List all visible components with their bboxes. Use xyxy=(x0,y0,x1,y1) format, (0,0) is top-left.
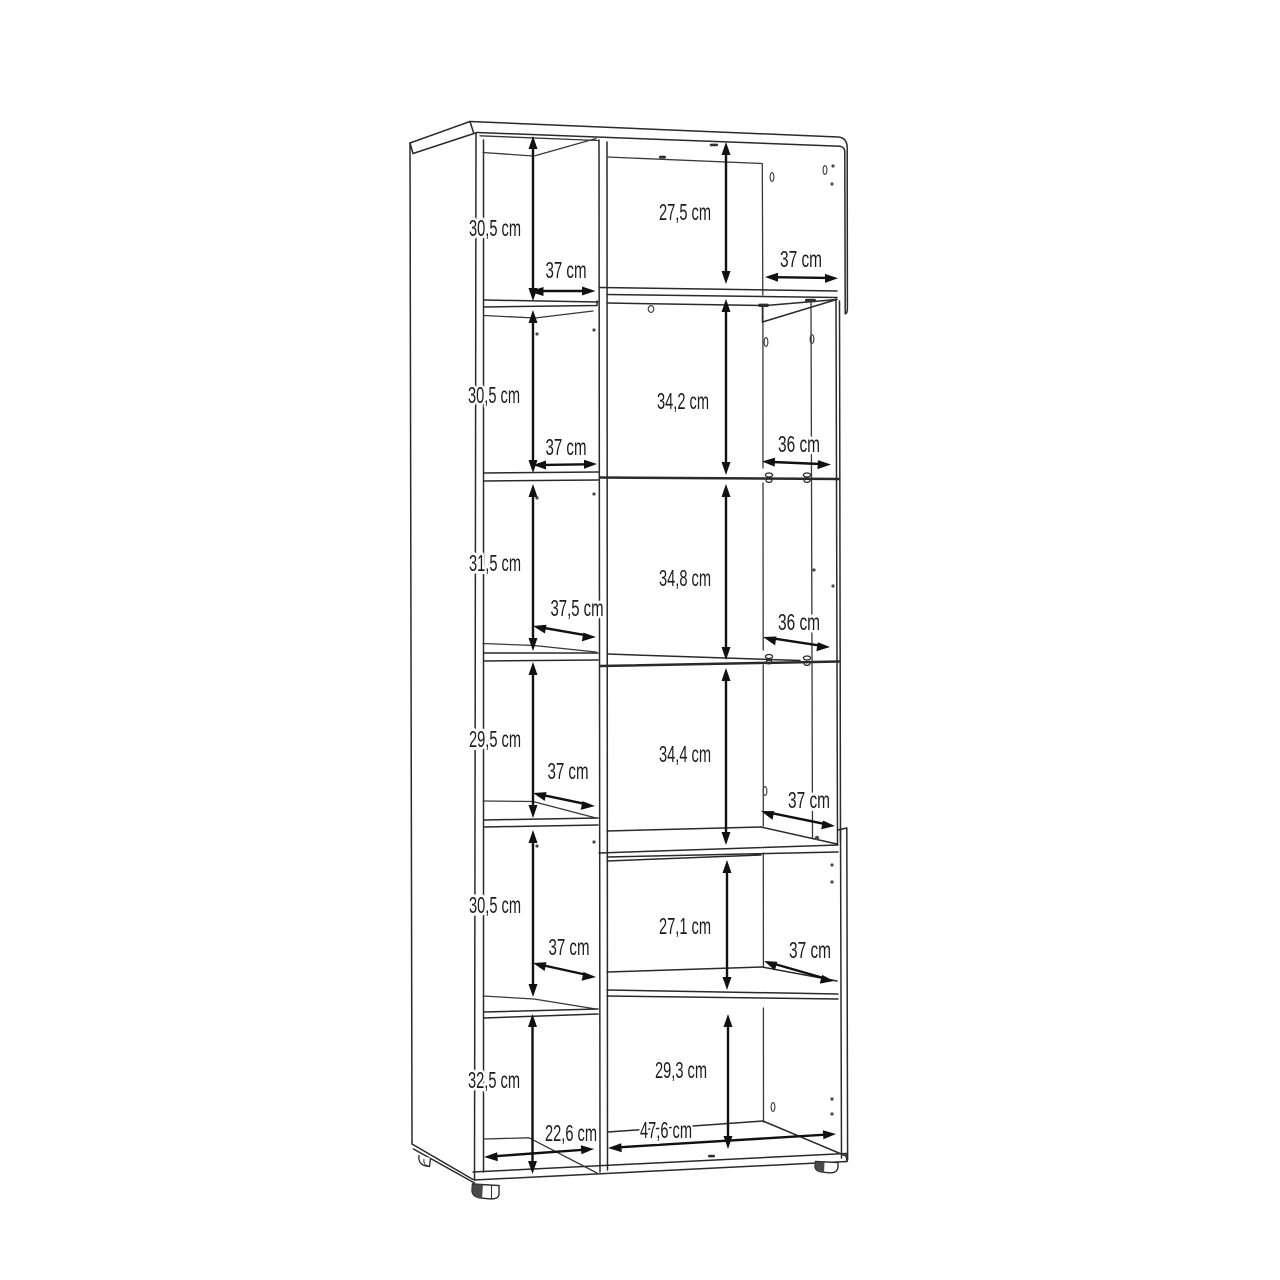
svg-text:30,5 cm: 30,5 cm xyxy=(469,215,521,241)
svg-text:32,5 cm: 32,5 cm xyxy=(468,1067,520,1093)
svg-text:34,8 cm: 34,8 cm xyxy=(659,565,711,591)
svg-text:37 cm: 37 cm xyxy=(546,257,587,283)
svg-text:36 cm: 36 cm xyxy=(778,431,820,457)
svg-text:47,6 cm: 47,6 cm xyxy=(640,1117,692,1143)
svg-text:27,1 cm: 27,1 cm xyxy=(659,913,711,939)
svg-text:37 cm: 37 cm xyxy=(780,246,822,272)
svg-text:30,5 cm: 30,5 cm xyxy=(468,382,520,408)
svg-text:37 cm: 37 cm xyxy=(546,434,587,460)
svg-text:37 cm: 37 cm xyxy=(549,934,590,960)
svg-text:31,5 cm: 31,5 cm xyxy=(469,550,521,576)
svg-text:36 cm: 36 cm xyxy=(778,609,820,635)
svg-text:37,5 cm: 37,5 cm xyxy=(551,595,604,621)
svg-text:30,5 cm: 30,5 cm xyxy=(469,892,521,918)
svg-text:22,6 cm: 22,6 cm xyxy=(545,1120,597,1146)
svg-text:27,5 cm: 27,5 cm xyxy=(659,199,711,225)
svg-text:34,4 cm: 34,4 cm xyxy=(659,741,711,767)
svg-text:37 cm: 37 cm xyxy=(788,787,830,813)
svg-text:29,5 cm: 29,5 cm xyxy=(469,726,521,752)
svg-text:34,2 cm: 34,2 cm xyxy=(657,388,709,414)
svg-text:37 cm: 37 cm xyxy=(548,758,589,784)
svg-text:29,3 cm: 29,3 cm xyxy=(655,1057,707,1083)
svg-text:37 cm: 37 cm xyxy=(789,937,831,963)
